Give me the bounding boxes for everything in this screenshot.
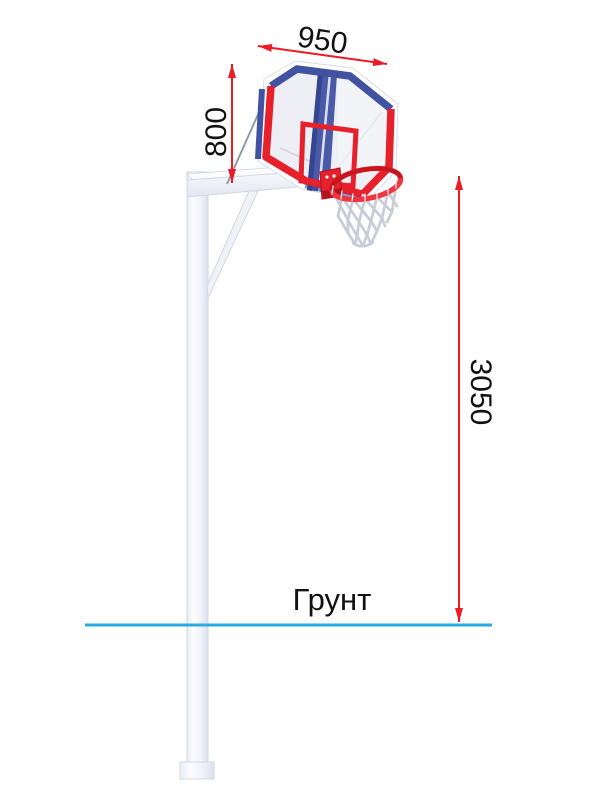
pole (180, 172, 214, 779)
frame-left-depth (258, 89, 262, 159)
dim-backboard-height: 800 (200, 64, 233, 183)
dim-rim-height: 3050 (459, 176, 497, 622)
pole-shaft (187, 172, 208, 764)
dim-rim-height-label: 3050 (464, 359, 497, 426)
dim-backboard-height-label: 800 (200, 107, 233, 157)
diagonal-brace (207, 191, 258, 298)
dim-backboard-width: 950 (258, 20, 387, 64)
bracket-bolt (332, 174, 335, 177)
diagram-page: 950 800 3050 Грунт (0, 0, 600, 800)
bracket-bolt (325, 175, 328, 178)
pole-base-anchor (180, 762, 214, 779)
ground-label: Грунт (293, 582, 372, 617)
dim-backboard-width-label: 950 (295, 20, 350, 60)
basketball-stand-diagram: 950 800 3050 Грунт (0, 0, 600, 800)
